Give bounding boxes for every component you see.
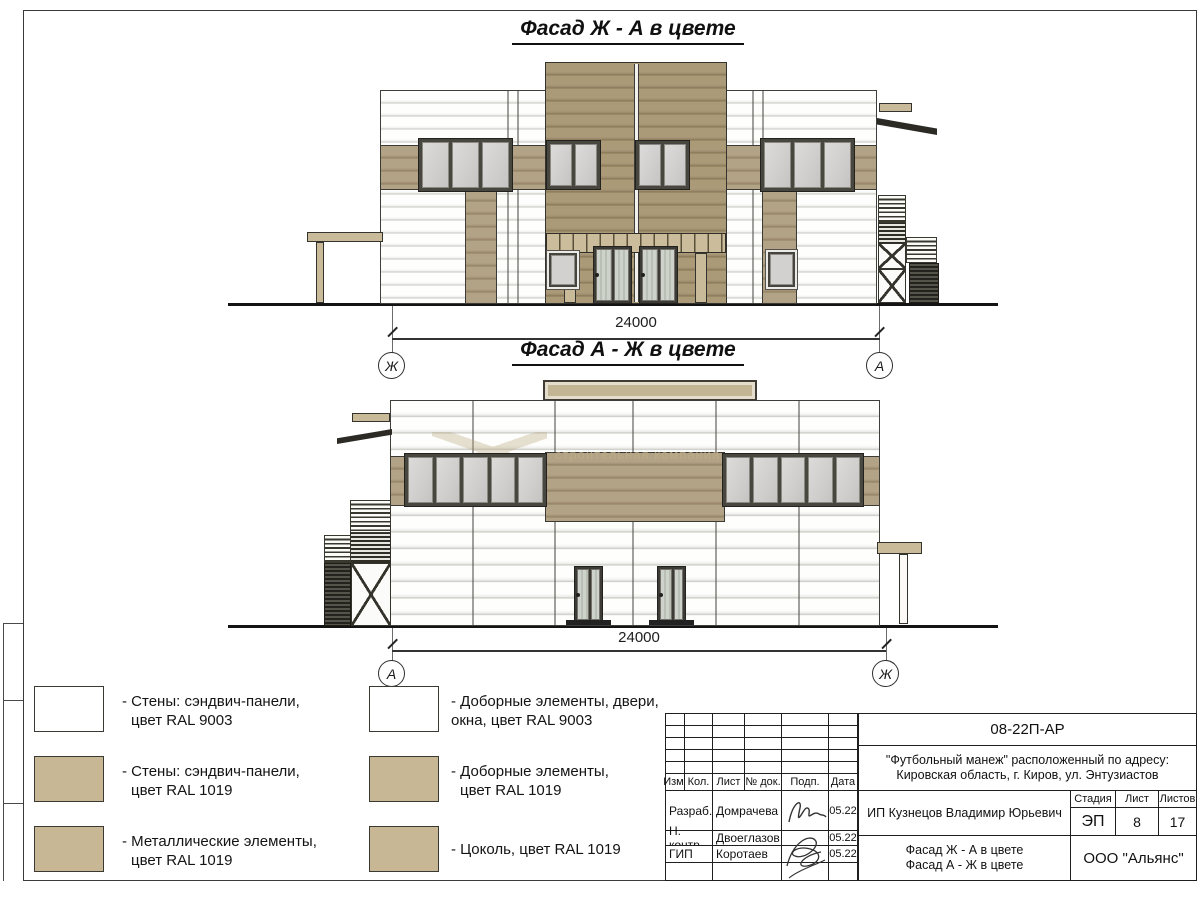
sheet-number: 8	[1115, 807, 1159, 836]
company-name: ООО "Альянс"	[1070, 835, 1197, 881]
drawing-title-cell: Фасад Ж - А в цвете Фасад А - Ж в цвете	[858, 835, 1071, 881]
signer-name: Двоеглазов	[712, 830, 782, 846]
signature-cell	[781, 830, 829, 846]
drawing-sheet: Фасад Ж - А в цвете	[0, 0, 1200, 900]
signer-name: Домрачева	[712, 790, 782, 831]
revision-table	[665, 713, 858, 774]
col-header-kol: Кол.	[684, 773, 713, 791]
sheet-label: Лист	[1115, 790, 1159, 808]
signer-date: 05.22	[828, 845, 858, 863]
signature-cell	[781, 845, 829, 863]
col-header-izm: Изм.	[665, 773, 685, 791]
signer-role: ГИП	[665, 845, 713, 863]
col-header-list: Лист	[712, 773, 745, 791]
col-header-podp: Подп.	[781, 773, 829, 791]
project-name: "Футбольный манеж" расположенный по адре…	[858, 745, 1197, 791]
sheets-label: Листов	[1158, 790, 1197, 808]
doc-number: 08-22П-АР	[858, 713, 1197, 746]
col-header-doc: № док.	[744, 773, 782, 791]
stage-label: Стадия	[1070, 790, 1116, 808]
signer-date: 05.22	[828, 830, 858, 846]
title-block: Изм. Кол. Лист № док. Подп. Дата Разраб.…	[0, 0, 1200, 900]
signer-role: Н. контр.	[665, 830, 713, 846]
signer-date: 05.22	[828, 790, 858, 831]
sheets-total: 17	[1158, 807, 1197, 836]
col-header-date: Дата	[828, 773, 858, 791]
signature-cell	[781, 790, 829, 831]
signer-name: Коротаев	[712, 845, 782, 863]
stage-value: ЭП	[1070, 807, 1116, 836]
client-name: ИП Кузнецов Владимир Юрьевич	[858, 790, 1071, 836]
